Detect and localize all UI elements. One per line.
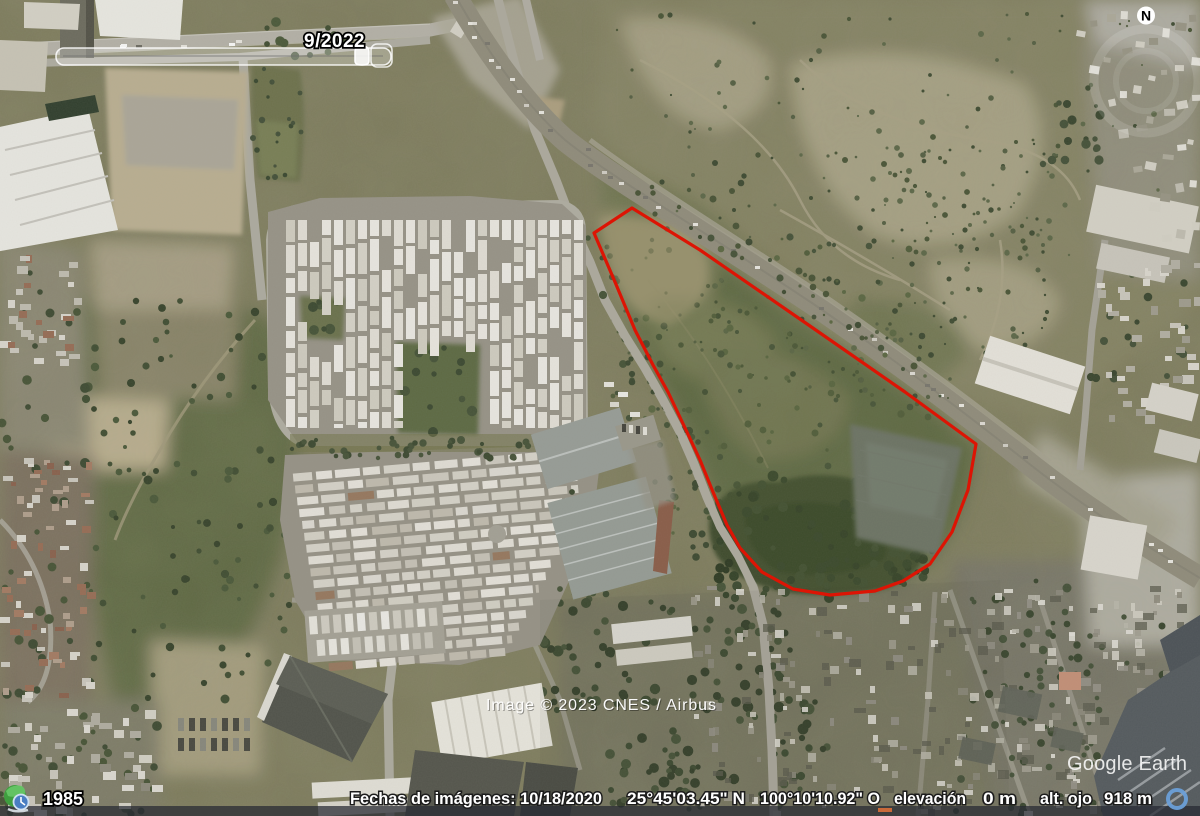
svg-text:0 m: 0 m (983, 789, 1016, 808)
svg-text:100°10'10.92" O: 100°10'10.92" O (760, 789, 880, 808)
svg-text:elevación: elevación (894, 789, 966, 808)
svg-text:918 m: 918 m (1104, 789, 1152, 808)
svg-text:Image © 2023 CNES / Airbus: Image © 2023 CNES / Airbus (486, 697, 717, 714)
svg-text:alt. ojo: alt. ojo (1040, 789, 1092, 808)
svg-text:1985: 1985 (43, 789, 83, 809)
svg-text:Google Earth: Google Earth (1067, 753, 1187, 775)
svg-text:N: N (1141, 8, 1151, 24)
svg-text:25°45'03.45" N: 25°45'03.45" N (627, 789, 745, 808)
svg-text:9/2022: 9/2022 (304, 31, 365, 52)
svg-text:Fechas de imágenes: 10/18/2020: Fechas de imágenes: 10/18/2020 (350, 789, 602, 808)
